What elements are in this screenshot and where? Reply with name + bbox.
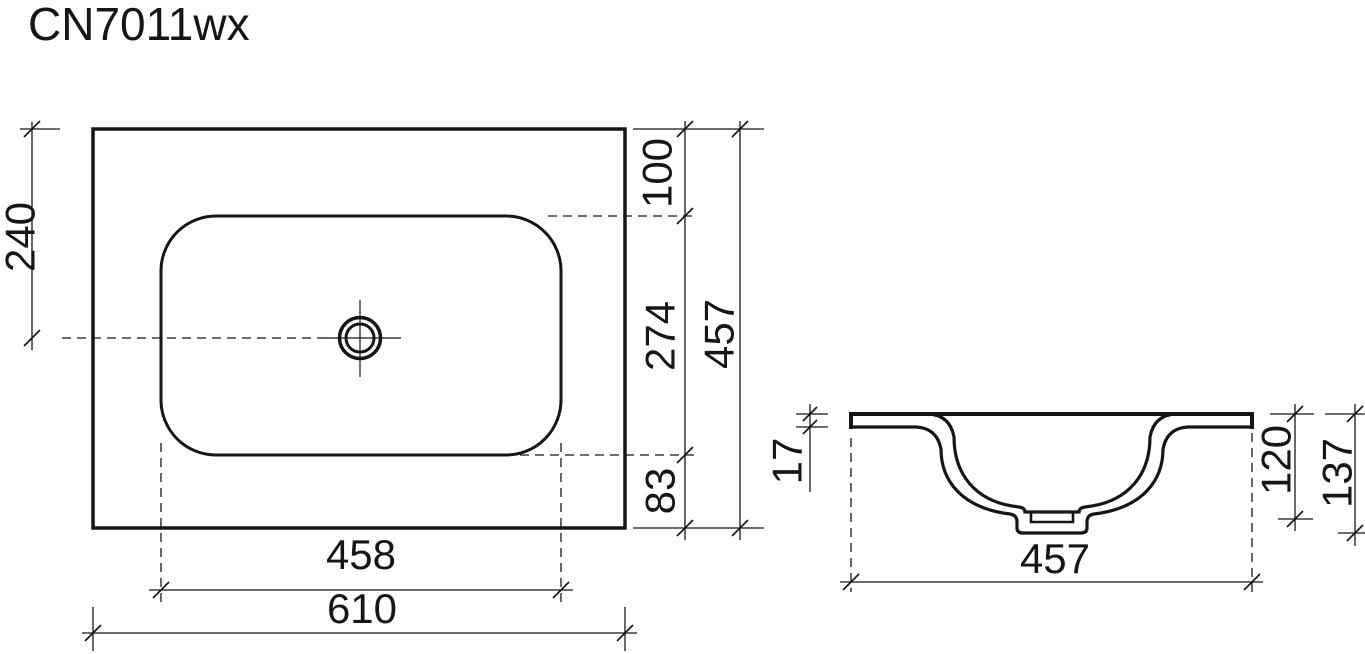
dim-100-274-83: 100 274 83: [445, 121, 694, 540]
dim-label-137: 137: [1314, 438, 1361, 508]
side-view-dimensions: 17 120 137 457: [764, 404, 1365, 592]
page-title: CN7011wx: [28, 0, 250, 50]
top-view: [62, 129, 625, 528]
dim-label-120: 120: [1253, 425, 1300, 495]
dim-label-610: 610: [327, 585, 397, 632]
top-view-basin-outline: [161, 216, 561, 455]
dim-120: 120: [1253, 404, 1315, 531]
dim-label-274: 274: [637, 301, 684, 371]
dim-label-457-right: 457: [696, 299, 743, 369]
technical-drawing-canvas: CN7011wx 240: [0, 0, 1365, 654]
dim-label-457-bottom: 457: [1020, 535, 1090, 582]
dim-137: 137: [1314, 404, 1365, 546]
side-view-bowl-outer-surface: [851, 427, 1252, 533]
dim-610: 610: [82, 585, 637, 651]
dim-label-100: 100: [634, 138, 681, 208]
dim-label-83: 83: [637, 468, 684, 515]
faucet-hole: [322, 300, 401, 377]
dim-240: 240: [0, 121, 60, 350]
side-view-countertop-slab: [851, 414, 1252, 427]
dim-458: 458: [149, 443, 573, 606]
side-view: [851, 414, 1252, 533]
drawing-sheet: CN7011wx 240: [0, 0, 1365, 654]
top-view-dimensions: 240 100 274 83 457: [0, 121, 764, 651]
dim-17: 17: [764, 404, 829, 492]
dim-label-17: 17: [764, 438, 811, 485]
dim-label-458: 458: [326, 531, 396, 578]
top-view-outer-edge: [93, 129, 625, 528]
dim-label-240: 240: [0, 202, 44, 272]
